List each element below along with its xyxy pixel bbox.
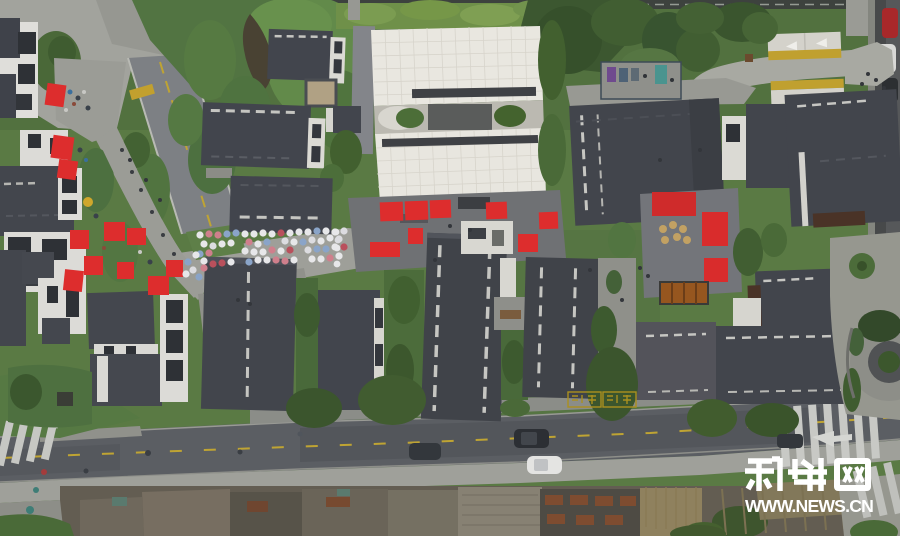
svg-text:WWW.NEWS.CN: WWW.NEWS.CN — [745, 496, 873, 516]
